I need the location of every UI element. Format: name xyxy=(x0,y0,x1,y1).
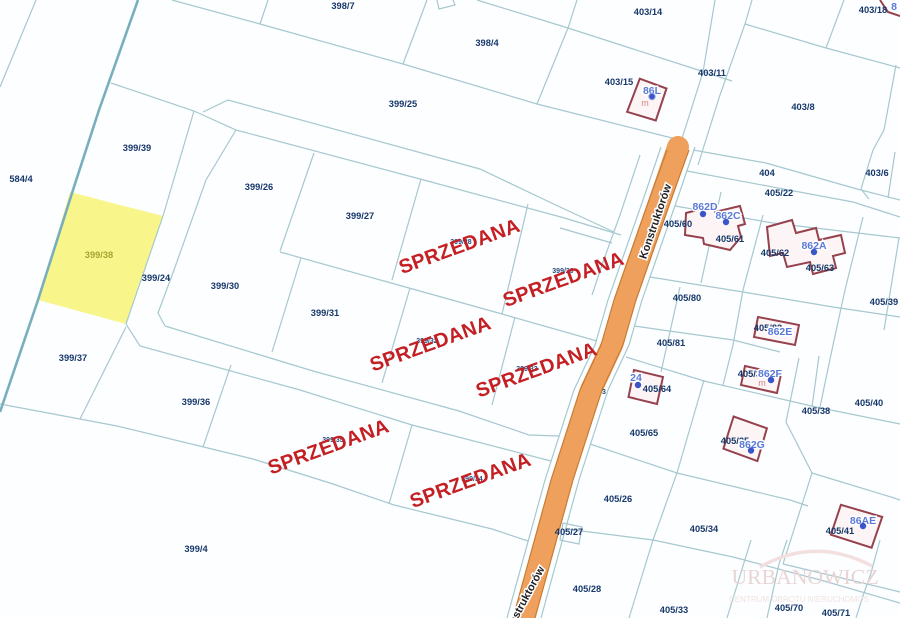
svg-text:3: 3 xyxy=(602,389,606,396)
svg-text:398/4: 398/4 xyxy=(475,38,499,48)
svg-text:m: m xyxy=(758,378,766,388)
svg-text:405/64: 405/64 xyxy=(643,384,672,394)
svg-text:399/31: 399/31 xyxy=(311,308,339,318)
svg-text:405/71: 405/71 xyxy=(822,608,850,618)
svg-text:399/26: 399/26 xyxy=(245,182,273,192)
svg-text:405/33: 405/33 xyxy=(660,605,688,615)
svg-text:404: 404 xyxy=(759,168,775,178)
svg-text:405/39: 405/39 xyxy=(870,297,898,307)
svg-text:8: 8 xyxy=(891,1,897,13)
svg-text:403/11: 403/11 xyxy=(698,68,726,78)
svg-text:405/40: 405/40 xyxy=(855,398,883,408)
svg-text:CENTRUM OBROTU NIERUCHOMOŚ: CENTRUM OBROTU NIERUCHOMOŚ xyxy=(729,595,869,604)
svg-text:399/38: 399/38 xyxy=(85,250,113,260)
svg-text:862D: 862D xyxy=(692,201,718,213)
svg-text:405/81: 405/81 xyxy=(657,338,685,348)
svg-text:862E: 862E xyxy=(768,326,793,338)
svg-text:405/63: 405/63 xyxy=(806,263,834,273)
svg-text:399/4: 399/4 xyxy=(184,544,208,554)
svg-text:405/34: 405/34 xyxy=(690,524,719,534)
svg-text:m: m xyxy=(641,98,649,108)
svg-text:403/8: 403/8 xyxy=(791,102,814,112)
svg-text:405/22: 405/22 xyxy=(765,188,793,198)
svg-text:405/41: 405/41 xyxy=(826,526,854,536)
svg-text:24: 24 xyxy=(630,372,642,384)
svg-text:405/80: 405/80 xyxy=(673,293,701,303)
svg-text:405/61: 405/61 xyxy=(716,234,744,244)
svg-text:403/14: 403/14 xyxy=(634,7,663,17)
svg-text:405/28: 405/28 xyxy=(573,584,601,594)
svg-text:398/7: 398/7 xyxy=(331,1,354,11)
svg-text:405/70: 405/70 xyxy=(775,603,803,613)
svg-text:399/24: 399/24 xyxy=(142,273,171,283)
svg-text:399/36: 399/36 xyxy=(182,397,210,407)
svg-text:403/6: 403/6 xyxy=(865,168,888,178)
svg-text:584/4: 584/4 xyxy=(9,174,33,184)
svg-text:405/27: 405/27 xyxy=(555,527,583,537)
svg-text:399/25: 399/25 xyxy=(389,99,417,109)
svg-text:403/18: 403/18 xyxy=(859,5,887,15)
svg-text:399/30: 399/30 xyxy=(211,281,239,291)
svg-text:399/37: 399/37 xyxy=(59,353,87,363)
svg-text:405/26: 405/26 xyxy=(604,494,632,504)
svg-text:399/27: 399/27 xyxy=(346,211,374,221)
svg-text:URBANOWICZ: URBANOWICZ xyxy=(732,565,879,589)
svg-text:403/15: 403/15 xyxy=(605,77,633,87)
svg-text:405/38: 405/38 xyxy=(802,406,830,416)
svg-text:405/60: 405/60 xyxy=(664,219,692,229)
svg-text:405/62: 405/62 xyxy=(761,248,789,258)
svg-text:399/39: 399/39 xyxy=(123,143,151,153)
svg-text:405/65: 405/65 xyxy=(630,428,658,438)
